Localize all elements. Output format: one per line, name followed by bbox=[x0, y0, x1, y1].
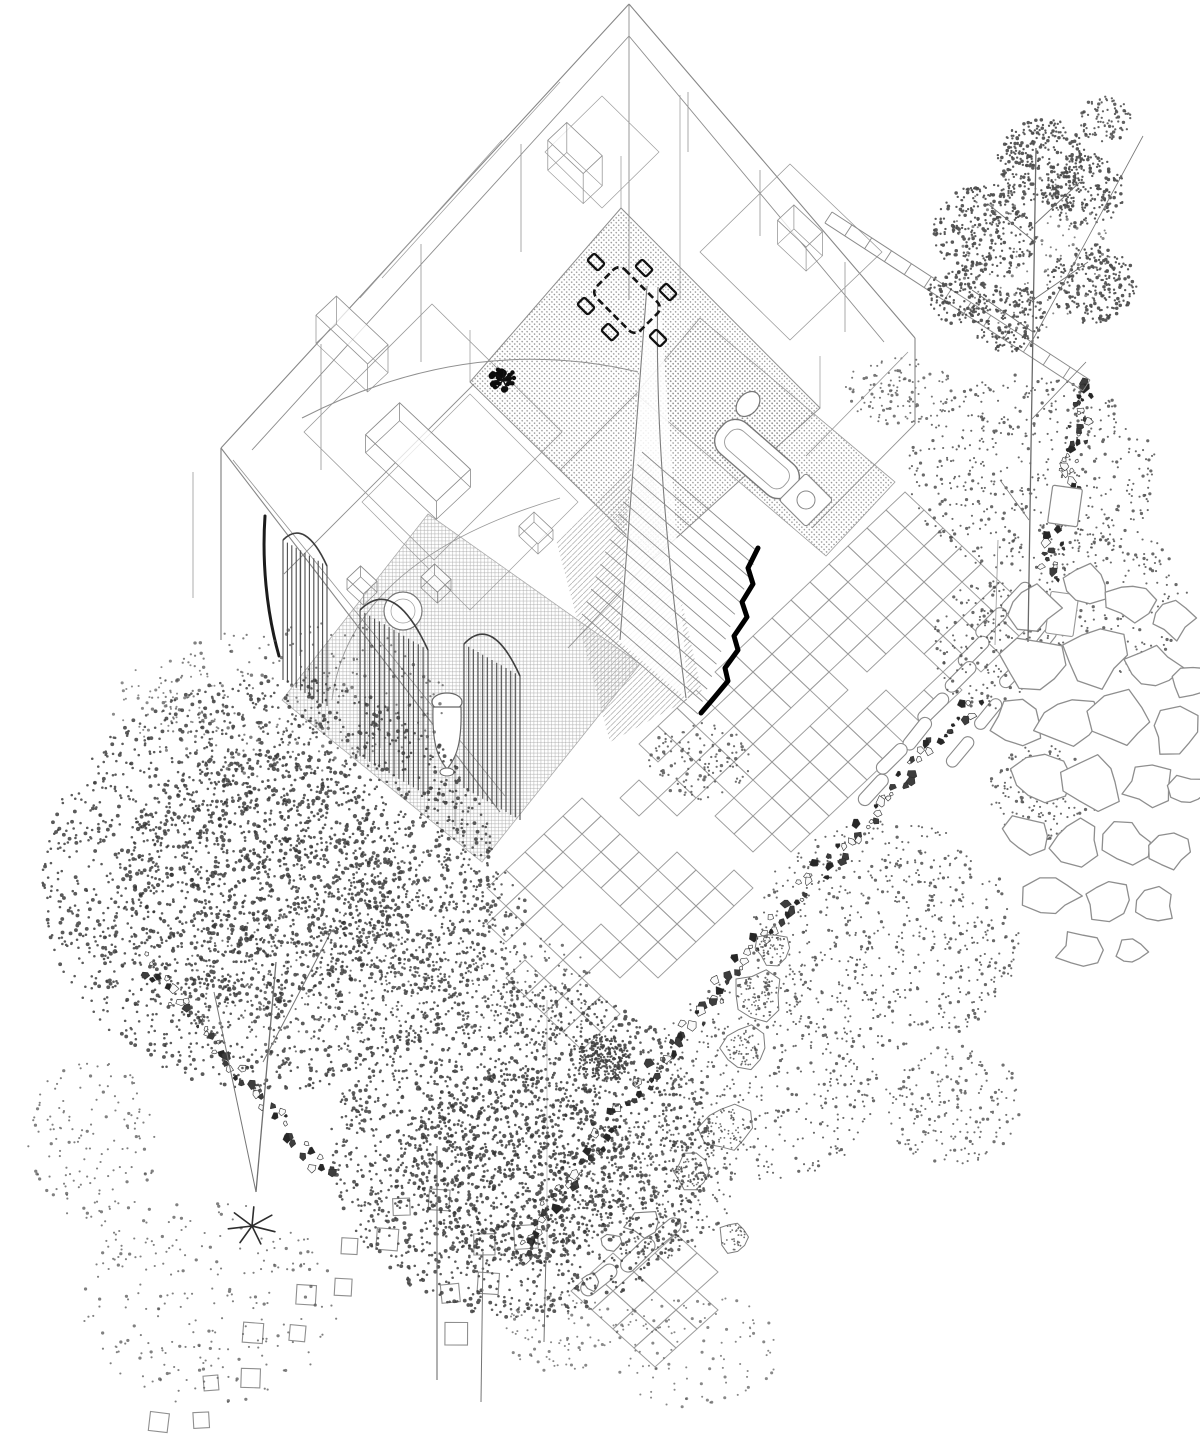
drawing-page bbox=[0, 0, 1200, 1449]
drawing-figure bbox=[0, 0, 1200, 1449]
axonometric-drawing bbox=[0, 0, 1200, 1449]
garden-gate-white bbox=[1048, 485, 1083, 527]
urn-foot bbox=[440, 768, 454, 776]
